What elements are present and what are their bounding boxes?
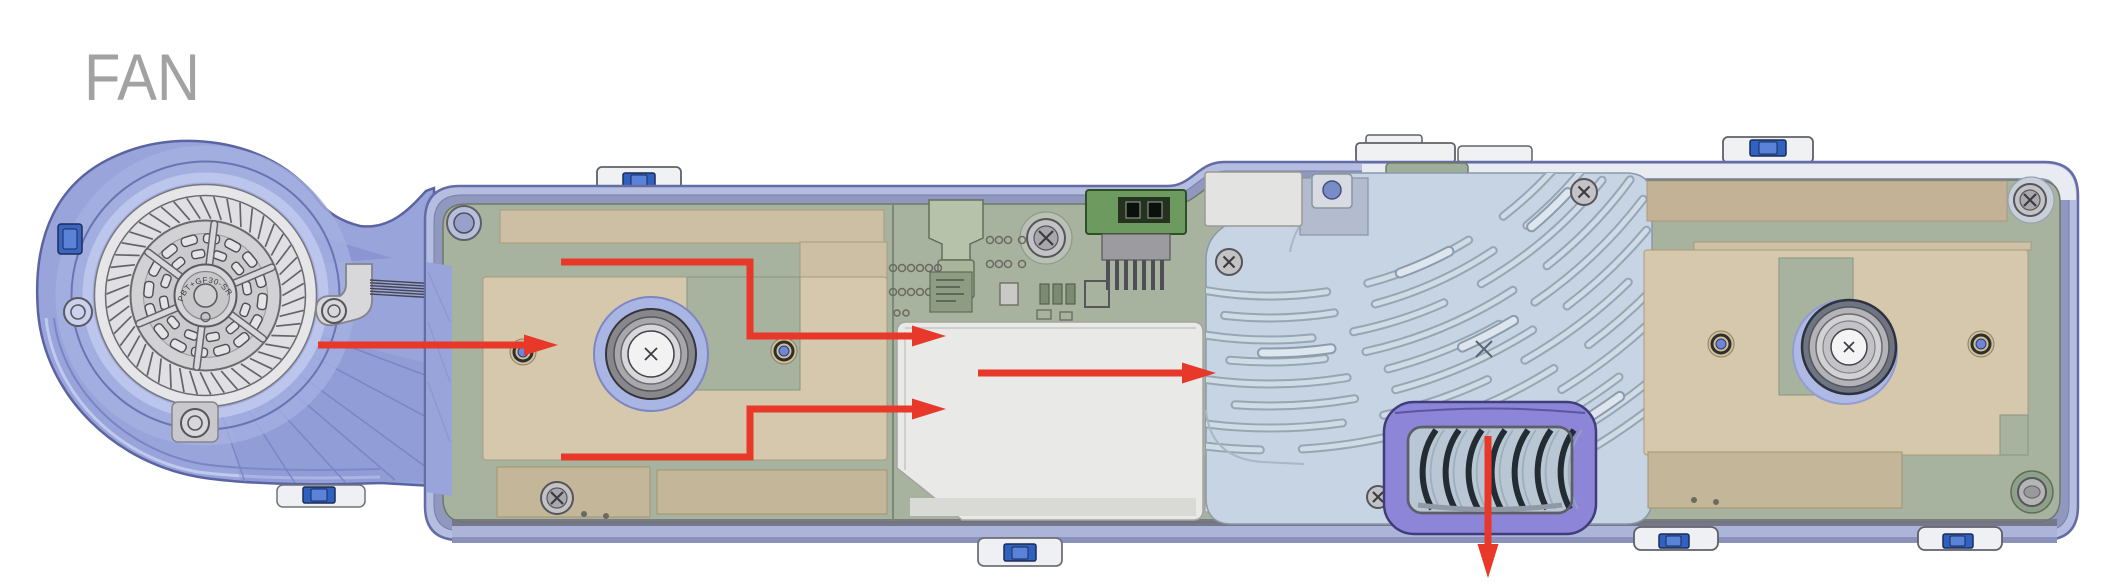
svg-text:FAN: FAN bbox=[84, 40, 200, 114]
